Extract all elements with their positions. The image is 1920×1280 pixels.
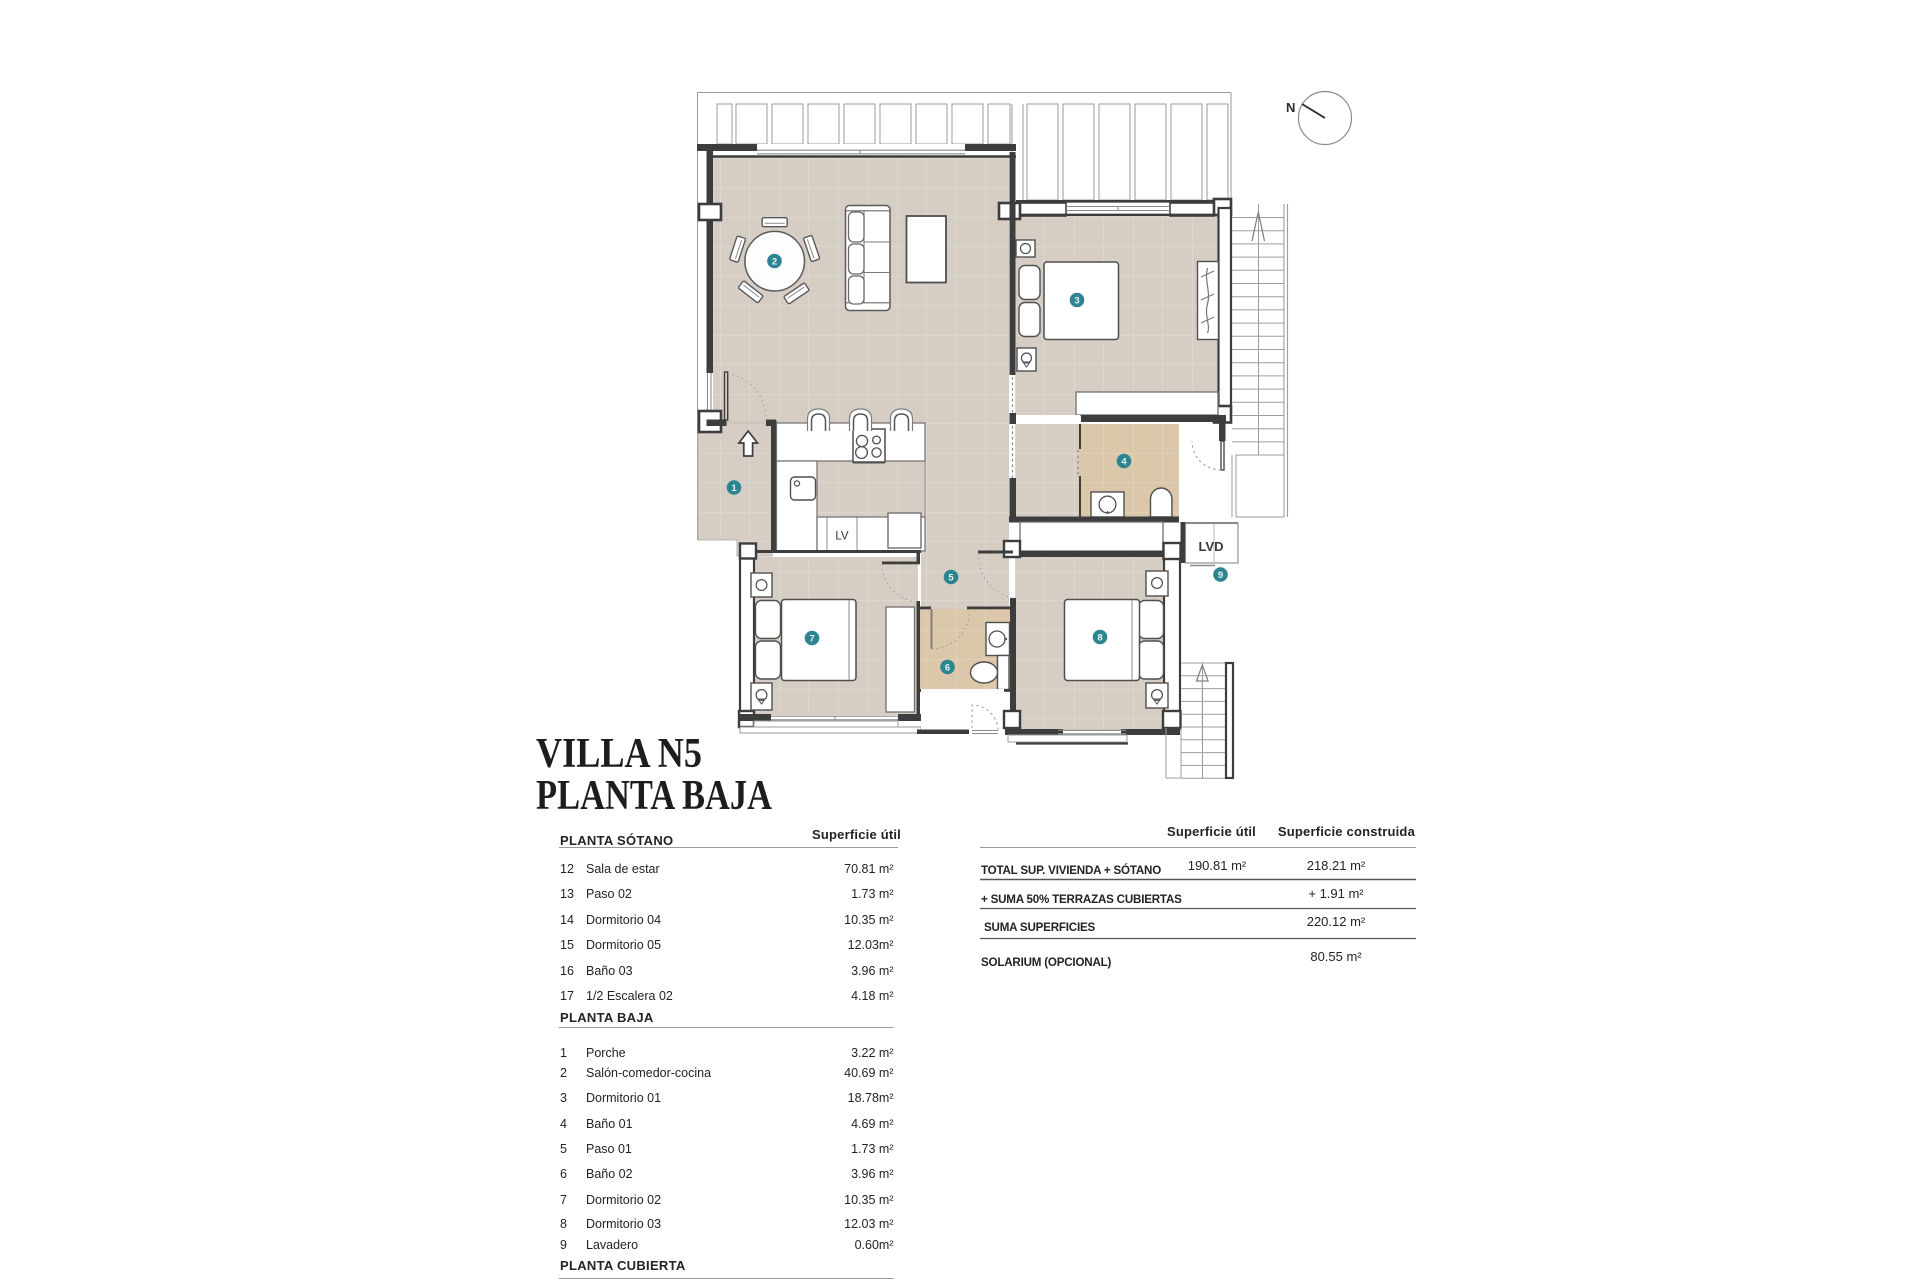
svg-text:N: N [1286,100,1295,115]
svg-text:Baño 03: Baño 03 [586,964,633,978]
svg-text:PLANTA SÓTANO: PLANTA SÓTANO [560,833,673,848]
svg-text:Lavadero: Lavadero [586,1238,638,1252]
svg-text:4.18 m²: 4.18 m² [851,989,893,1003]
svg-text:9: 9 [560,1238,567,1252]
svg-text:218.21 m²: 218.21 m² [1307,858,1366,873]
svg-text:LV: LV [835,531,849,543]
svg-text:Dormitorio 04: Dormitorio 04 [586,913,661,927]
svg-text:12.03 m²: 12.03 m² [844,1217,893,1231]
svg-text:Salón-comedor-cocina: Salón-comedor-cocina [586,1066,711,1080]
svg-text:VILLA N5: VILLA N5 [536,731,702,777]
svg-text:8: 8 [560,1217,567,1231]
svg-text:Dormitorio 01: Dormitorio 01 [586,1091,661,1105]
svg-text:3.96 m²: 3.96 m² [851,1167,893,1181]
svg-text:8: 8 [1097,632,1102,643]
svg-text:Dormitorio 05: Dormitorio 05 [586,938,661,952]
svg-text:Baño 01: Baño 01 [586,1117,633,1131]
svg-text:Paso 01: Paso 01 [586,1142,632,1156]
svg-text:Sala de estar: Sala de estar [586,862,660,876]
svg-text:Superficie útil: Superficie útil [812,827,901,842]
svg-text:Dormitorio 02: Dormitorio 02 [586,1193,661,1207]
svg-text:Paso 02: Paso 02 [586,887,632,901]
svg-text:18.78m²: 18.78m² [848,1091,894,1105]
svg-text:3: 3 [1074,295,1079,306]
svg-text:4: 4 [560,1117,567,1131]
svg-text:4.69 m²: 4.69 m² [851,1117,893,1131]
svg-text:0.60m²: 0.60m² [855,1238,894,1252]
svg-text:13: 13 [560,887,574,901]
svg-text:6: 6 [560,1167,567,1181]
svg-text:PLANTA BAJA: PLANTA BAJA [536,773,773,819]
svg-text:80.55 m²: 80.55 m² [1310,949,1362,964]
svg-text:12.03m²: 12.03m² [848,938,894,952]
svg-text:2: 2 [772,256,777,267]
svg-text:5: 5 [560,1142,567,1156]
svg-text:Superficie útil: Superficie útil [1167,824,1256,839]
svg-text:1: 1 [731,483,737,494]
svg-text:Superficie construida: Superficie construida [1278,824,1416,839]
svg-text:1/2 Escalera 02: 1/2 Escalera 02 [586,989,673,1003]
svg-text:3.22 m²: 3.22 m² [851,1046,893,1060]
svg-text:220.12 m²: 220.12 m² [1307,914,1366,929]
svg-text:PLANTA BAJA: PLANTA BAJA [560,1010,654,1025]
svg-text:Baño 02: Baño 02 [586,1167,633,1181]
svg-text:9: 9 [1218,570,1223,581]
svg-text:Porche: Porche [586,1046,626,1060]
svg-text:10.35 m²: 10.35 m² [844,913,893,927]
svg-text:Dormitorio 03: Dormitorio 03 [586,1217,661,1231]
svg-text:4: 4 [1121,456,1127,467]
svg-text:7: 7 [560,1193,567,1207]
svg-text:16: 16 [560,964,574,978]
svg-text:+ 1.91 m²: + 1.91 m² [1308,886,1364,901]
svg-text:PLANTA CUBIERTA: PLANTA CUBIERTA [560,1258,686,1273]
svg-text:70.81 m²: 70.81 m² [844,862,893,876]
svg-text:15: 15 [560,938,574,952]
svg-text:2: 2 [560,1066,567,1080]
svg-text:SUMA SUPERFICIES: SUMA SUPERFICIES [984,921,1096,934]
svg-text:1.73 m²: 1.73 m² [851,1142,893,1156]
svg-text:TOTAL SUP. VIVIENDA + SÓTANO: TOTAL SUP. VIVIENDA + SÓTANO [981,864,1161,877]
svg-text:1.73 m²: 1.73 m² [851,887,893,901]
svg-text:12: 12 [560,862,574,876]
svg-text:10.35 m²: 10.35 m² [844,1193,893,1207]
svg-text:LVD: LVD [1198,539,1223,554]
svg-text:3.96 m²: 3.96 m² [851,964,893,978]
svg-text:5: 5 [948,572,954,583]
svg-text:14: 14 [560,913,574,927]
svg-text:6: 6 [945,662,950,673]
svg-text:7: 7 [809,633,814,644]
svg-text:+ SUMA 50% TERRAZAS CUBIERTAS: + SUMA 50% TERRAZAS CUBIERTAS [981,893,1182,906]
svg-text:1: 1 [560,1046,567,1060]
svg-text:SOLARIUM (OPCIONAL): SOLARIUM (OPCIONAL) [981,956,1112,969]
svg-text:17: 17 [560,989,574,1003]
svg-text:190.81 m²: 190.81 m² [1188,858,1247,873]
svg-text:3: 3 [560,1091,567,1105]
svg-text:40.69 m²: 40.69 m² [844,1066,893,1080]
